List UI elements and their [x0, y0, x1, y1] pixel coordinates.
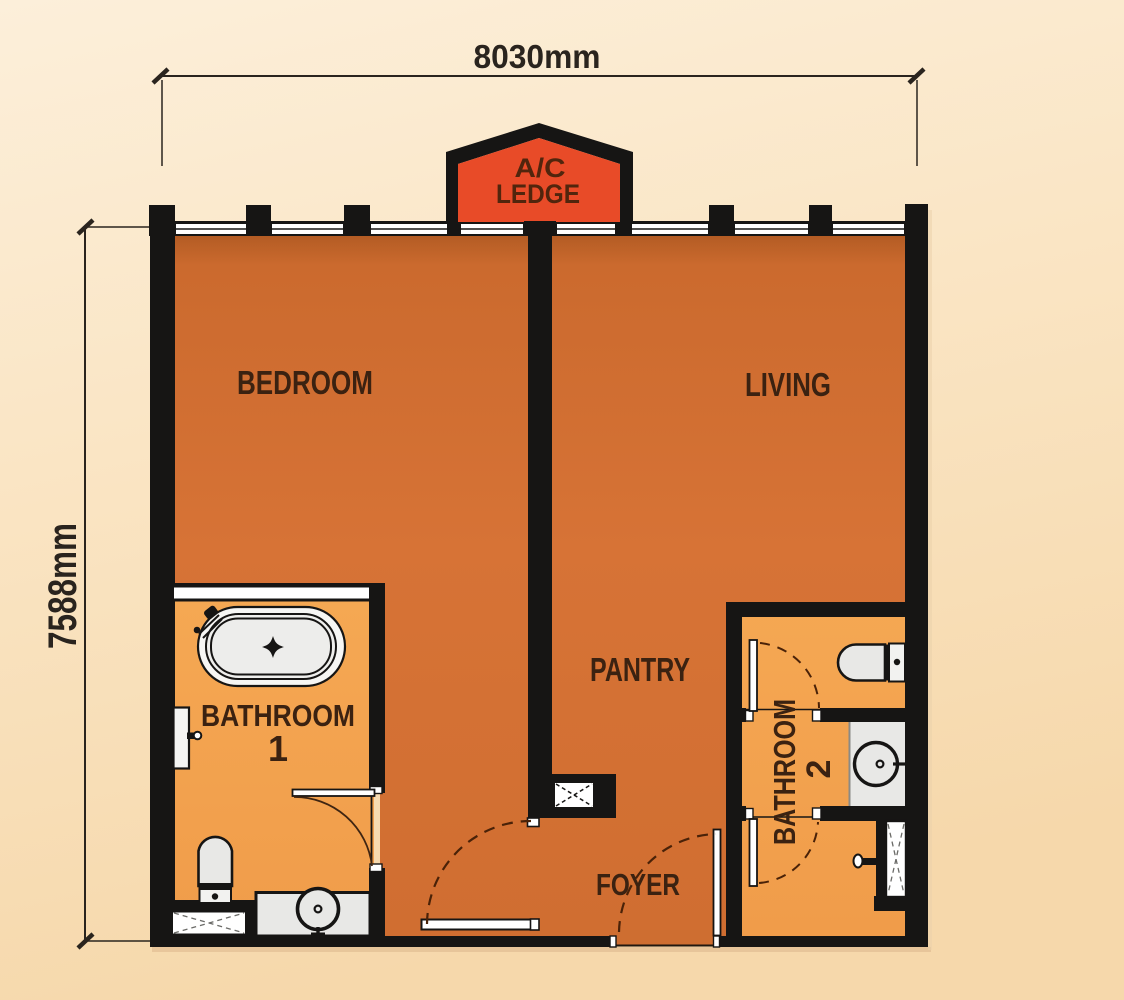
svg-text:2: 2: [800, 760, 838, 779]
svg-text:FOYER: FOYER: [596, 867, 680, 902]
svg-text:LEDGE: LEDGE: [496, 179, 580, 209]
svg-text:BEDROOM: BEDROOM: [237, 364, 373, 401]
svg-text:1: 1: [268, 728, 288, 769]
svg-text:8030mm: 8030mm: [474, 38, 601, 75]
svg-text:7588mm: 7588mm: [41, 523, 85, 649]
svg-text:BATHROOM: BATHROOM: [767, 699, 802, 845]
svg-text:LIVING: LIVING: [745, 366, 831, 403]
svg-text:PANTRY: PANTRY: [590, 651, 690, 688]
